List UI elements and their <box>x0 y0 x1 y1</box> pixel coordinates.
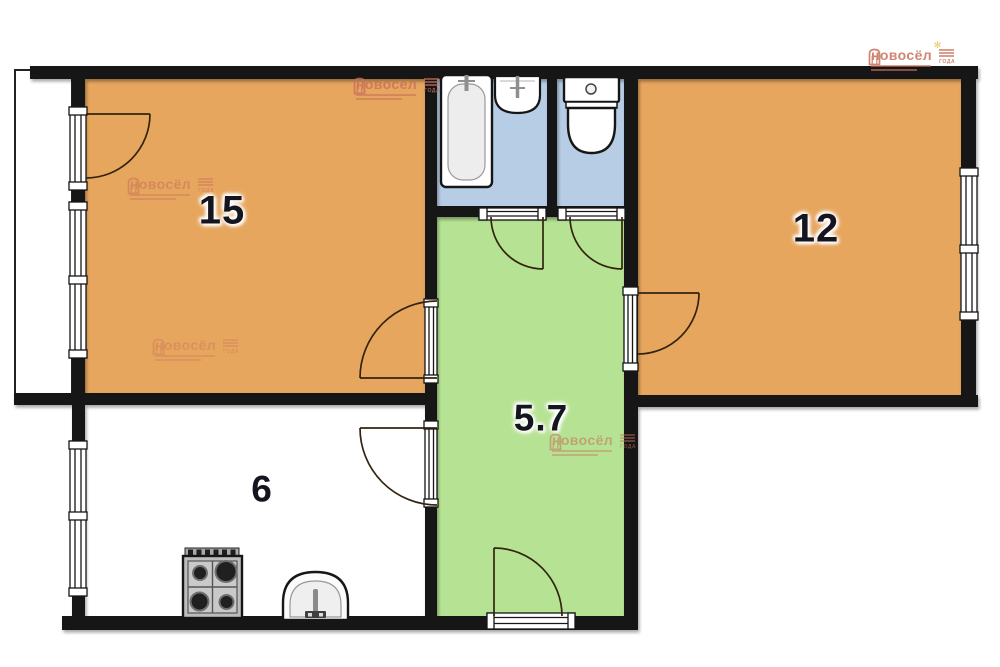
balcony-area <box>15 70 72 395</box>
floor-plan: 15 12 5.7 6 новосёл ГОДА новосёл ГОДА но… <box>0 0 1000 667</box>
bathroom-door-threshold <box>479 208 546 220</box>
kitchen-door-threshold <box>424 421 438 507</box>
bath-sink-icon <box>495 76 540 113</box>
kitchen-window <box>69 441 87 596</box>
kitchen-sink-icon <box>283 572 348 620</box>
bedroom-area <box>630 70 970 400</box>
living-room-area <box>78 70 430 398</box>
floor-plan-drawing <box>0 0 1000 667</box>
bathtub-icon <box>441 75 492 187</box>
toilet-door-threshold <box>558 208 625 220</box>
wall-living-kitchen <box>14 393 437 405</box>
wall-bath-toilet <box>547 66 557 216</box>
balcony-door-window <box>69 107 87 190</box>
kitchen-area <box>78 400 430 622</box>
living-room-window <box>69 202 87 358</box>
gas-stove-icon <box>183 548 242 618</box>
toilet-icon <box>564 77 619 153</box>
living-room-door-threshold <box>424 299 438 383</box>
hallway-area <box>430 210 630 622</box>
bedroom-door-threshold <box>623 287 638 371</box>
wall-bedroom-bottom <box>624 395 978 407</box>
bedroom-window <box>960 168 978 320</box>
